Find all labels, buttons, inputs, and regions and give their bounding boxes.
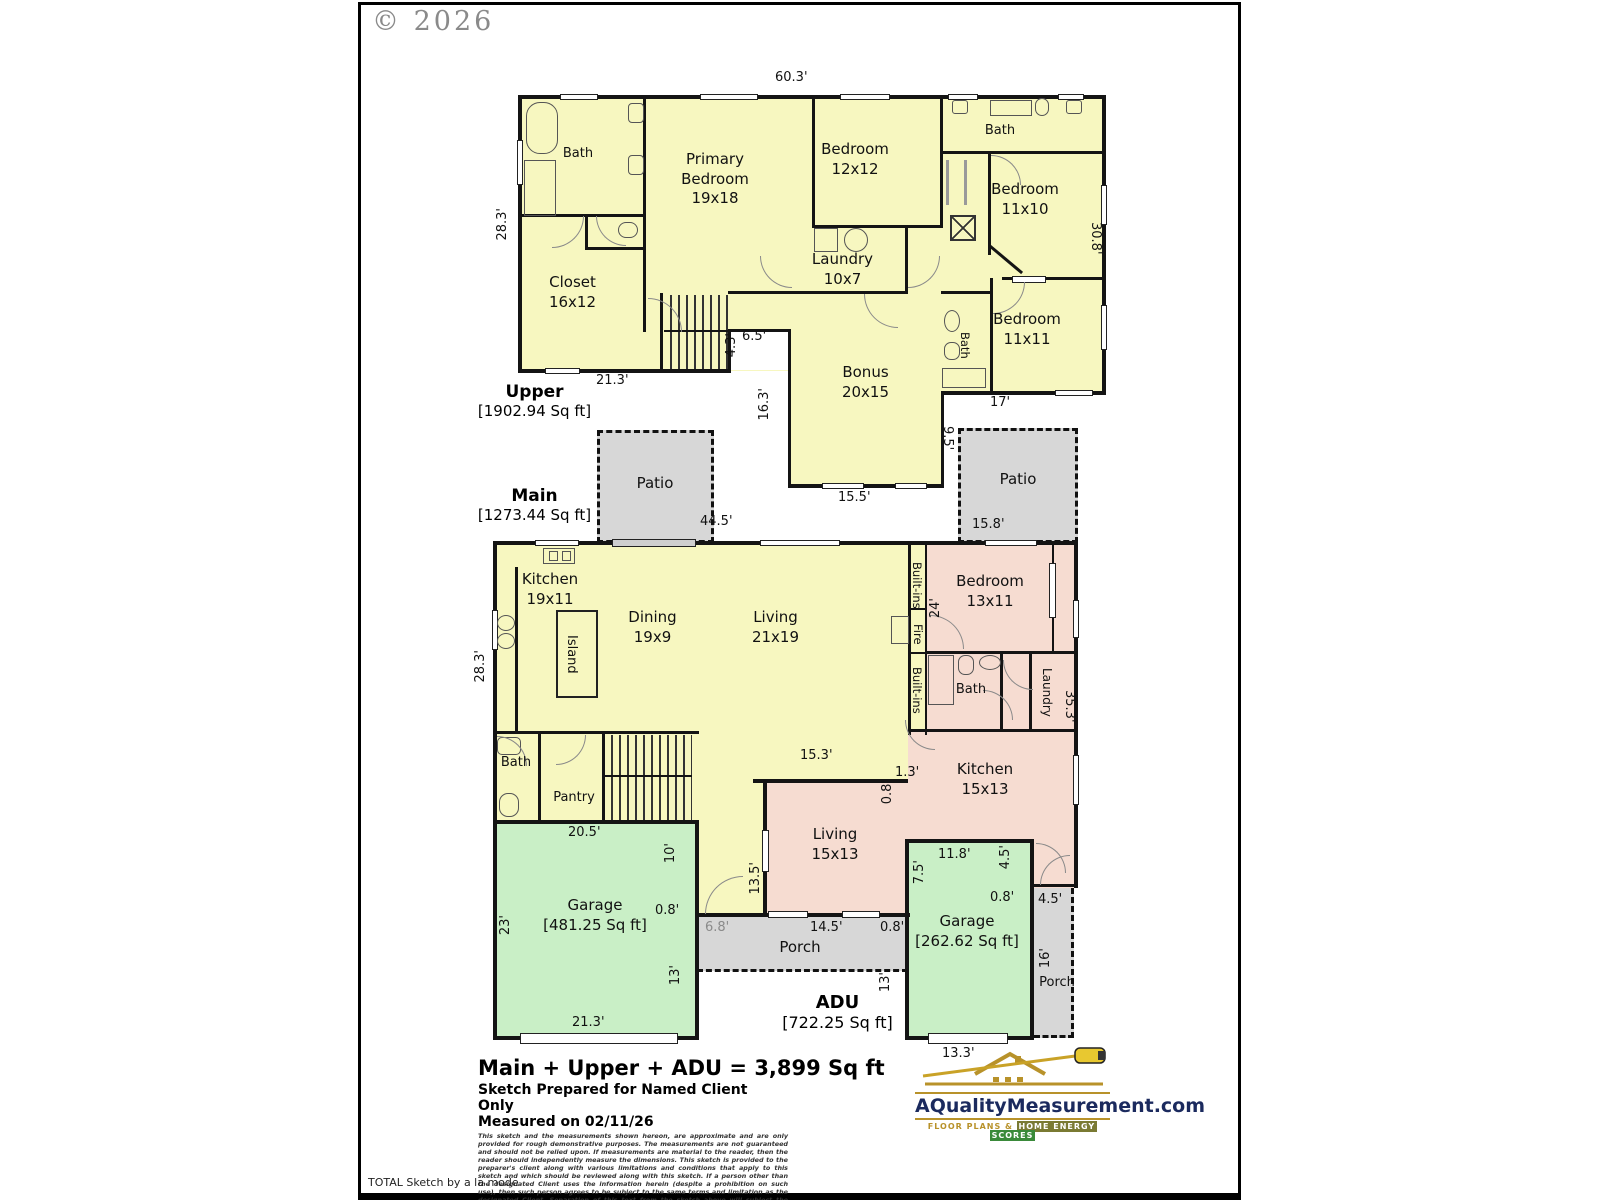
fireplace (891, 616, 909, 644)
window (1073, 600, 1079, 638)
cooktop-burners (497, 615, 515, 631)
window (1073, 755, 1079, 805)
vanity (990, 100, 1032, 116)
copyright-text: © 2026 (372, 6, 494, 37)
wall (940, 151, 1104, 154)
dim-upper-bottom-left: 21.3' (596, 373, 629, 388)
tub (942, 368, 986, 388)
room-label-laundry-adu: Laundry (1040, 655, 1054, 729)
wall (538, 731, 541, 823)
room-label-patio-right: Patio (978, 470, 1058, 490)
dryer (844, 228, 868, 252)
dim-bonus-left: 16.3' (757, 388, 772, 421)
branding-block: AQualityMeasurement.com Floor Plans & Ho… (915, 1046, 1110, 1140)
floor-sqft-main: [1273.44 Sq ft] (452, 506, 617, 524)
room-label-bedroom-13x11: Bedroom 13x11 (940, 572, 1040, 611)
room-label-pantry: Pantry (545, 790, 603, 807)
wall (908, 839, 1034, 843)
room-label-closet: Closet 16x12 (525, 273, 620, 312)
total-sqft-text: Main + Upper + ADU = 3,899 Sq ft (478, 1056, 788, 1080)
room-label-fire: Fire (911, 618, 925, 650)
dim-garage2-4-5a: 4.5' (998, 845, 1013, 869)
adu-boundary-dashed (697, 969, 908, 972)
garage-door-adu (928, 1033, 1008, 1044)
dim-notch-width: 6.5' (742, 329, 766, 344)
window (560, 94, 598, 100)
room-label-bonus: Bonus 20x15 (813, 363, 918, 402)
sink (1066, 100, 1082, 114)
wall (493, 820, 699, 824)
floor-label-adu: ADU [722.25 Sq ft] (755, 992, 920, 1032)
dim-porch-6-8: 6.8' (705, 920, 729, 935)
room-label-patio-left: Patio (615, 474, 695, 494)
room-label-dining: Dining 19x9 (610, 608, 695, 647)
room-label-porch-main: Porch (765, 938, 835, 958)
dim-patio-right-height: 9.5' (940, 426, 955, 450)
toilet (1035, 98, 1049, 116)
cooktop-burners (497, 633, 515, 649)
room-label-bath-main: Bath (494, 755, 538, 772)
dim-upper-left: 28.3' (495, 208, 510, 241)
room-label-garage-adu: Garage [262.62 Sq ft] (902, 912, 1032, 951)
window (1055, 390, 1093, 396)
dim-bonus-bottom: 15.5' (838, 490, 871, 505)
dim-main-left: 28.3' (473, 650, 488, 683)
room-label-bath-upper3: Bath (958, 322, 972, 368)
branding-site-text: AQualityMeasurement.com (915, 1092, 1110, 1120)
sliding-door (612, 539, 696, 547)
dim-adu-bedroom-side: 24' (928, 598, 943, 618)
wall (1030, 888, 1034, 1040)
wall (925, 541, 927, 735)
disclaimer-text: This sketch and the measurements shown h… (478, 1132, 788, 1200)
dim-upper-right: 30.8' (1088, 222, 1103, 255)
dim-patio-right-width: 15.8' (972, 517, 1005, 532)
dim-garage-10: 10' (663, 843, 678, 863)
floor-label-main: Main [1273.44 Sq ft] (452, 486, 617, 524)
sink-basin (549, 551, 558, 561)
dim-15-3: 15.3' (800, 748, 833, 763)
wall (1030, 839, 1034, 888)
floor-name-upper: Upper (452, 382, 617, 402)
room-label-primary-bedroom: Primary Bedroom 19x18 (640, 150, 790, 209)
dim-notch-height: 4.3' (724, 333, 739, 357)
dim-garage2-0-8: 0.8' (990, 890, 1014, 905)
sink (952, 100, 968, 114)
room-label-porch-adu: Porch (1035, 975, 1079, 992)
window (545, 368, 580, 374)
wall (908, 652, 925, 654)
tagline-scores: Scores (990, 1130, 1036, 1141)
window (985, 540, 1037, 546)
dim-main-top: 44.5' (700, 514, 733, 529)
branding-tagline: Floor Plans & Home Energy Scores (915, 1122, 1110, 1140)
closet-rod (964, 160, 967, 205)
closet-rod (946, 160, 949, 205)
tape-measure-logo-icon (915, 1046, 1110, 1088)
room-label-bath-adu: Bath (948, 682, 994, 699)
window (1101, 185, 1107, 225)
dim-living-13-5: 13.5' (748, 862, 763, 895)
toilet (499, 793, 519, 817)
dim-garage-13: 13' (668, 965, 683, 985)
footer-note: TOTAL Sketch by a la mode (368, 1176, 519, 1189)
wall (941, 291, 991, 294)
window (517, 140, 523, 185)
window (895, 483, 927, 489)
prepared-for-text: Sketch Prepared for Named Client Only (478, 1082, 788, 1114)
dim-upper-top: 60.3' (775, 70, 808, 85)
floor-name-adu: ADU (755, 992, 920, 1013)
floorplan-sketch-page: © 2026 (0, 0, 1600, 1200)
room-label-living-adu: Living 15x13 (785, 825, 885, 864)
wall (585, 247, 645, 250)
floor-sqft-upper: [1902.94 Sq ft] (452, 402, 617, 420)
sink-basin (562, 551, 571, 561)
shower (524, 160, 556, 216)
window (535, 540, 579, 546)
room-label-kitchen-adu: Kitchen 15x13 (930, 760, 1040, 799)
dim-porch2-16: 16' (1038, 948, 1053, 968)
room-label-bath-upper: Bath (548, 146, 608, 163)
window (840, 94, 890, 100)
wall (518, 95, 522, 373)
window (842, 911, 880, 918)
floor-label-upper: Upper [1902.94 Sq ft] (452, 382, 617, 420)
stairs-main (605, 735, 692, 820)
sink (979, 655, 1001, 670)
wall (695, 820, 699, 1040)
room-label-builtins-bottom: Built-ins (910, 660, 924, 720)
room-label-builtins-top: Built-ins (910, 558, 924, 613)
dim-porch-14-5: 14.5' (810, 920, 843, 935)
dim-garage2-7-5: 7.5' (912, 860, 927, 884)
dim-garage-bottom: 21.3' (572, 1015, 605, 1030)
room-label-bedroom-11x10: Bedroom 11x10 (970, 180, 1080, 219)
wall (585, 214, 588, 250)
wall (493, 731, 699, 734)
wall (788, 329, 791, 488)
room-label-island: Island (564, 618, 579, 690)
window (1101, 305, 1107, 350)
floor-sqft-adu: [722.25 Sq ft] (755, 1013, 920, 1032)
room-label-bedroom-11x11: Bedroom 11x11 (972, 310, 1082, 349)
dim-garage2-top: 11.8' (938, 847, 971, 862)
stairs-upper (664, 295, 728, 369)
dim-garage-0-8: 0.8' (655, 903, 679, 918)
dim-garage-top: 20.5' (568, 825, 601, 840)
dim-1-3: 1.3' (895, 765, 919, 780)
room-label-living-main: Living 21x19 (728, 608, 823, 647)
room-label-garage-main: Garage [481.25 Sq ft] (530, 896, 660, 935)
sink (628, 103, 644, 123)
dim-garage2-4-5b: 4.5' (1038, 892, 1062, 907)
stair-rail (605, 775, 692, 777)
dim-garage-left-23: 23' (498, 915, 513, 935)
measured-on-text: Measured on 02/11/26 (478, 1114, 788, 1130)
floor-name-main: Main (452, 486, 617, 506)
dim-upper-right-bottom: 17' (990, 395, 1010, 410)
window (762, 830, 769, 872)
dim-adu-0-8: 0.8' (880, 780, 895, 804)
garage-door-main (520, 1033, 678, 1044)
window (700, 94, 758, 100)
dim-adu-right: 35.3' (1062, 690, 1077, 723)
window (822, 483, 864, 489)
room-label-bath-upper2: Bath (975, 123, 1025, 140)
toilet (958, 655, 974, 675)
window (768, 911, 808, 918)
summary-block: Main + Upper + ADU = 3,899 Sq ft Sketch … (478, 1056, 788, 1200)
dim-adu-13: 13' (878, 972, 893, 992)
window (760, 540, 840, 546)
room-label-kitchen-main: Kitchen 19x11 (505, 570, 595, 609)
wall (940, 98, 943, 228)
room-label-laundry-upper: Laundry 10x7 (795, 250, 890, 289)
closet-door (1049, 563, 1056, 618)
washer (814, 228, 838, 252)
room-label-bedroom-12x12: Bedroom 12x12 (800, 140, 910, 179)
dim-porch-0-8: 0.8' (880, 920, 904, 935)
